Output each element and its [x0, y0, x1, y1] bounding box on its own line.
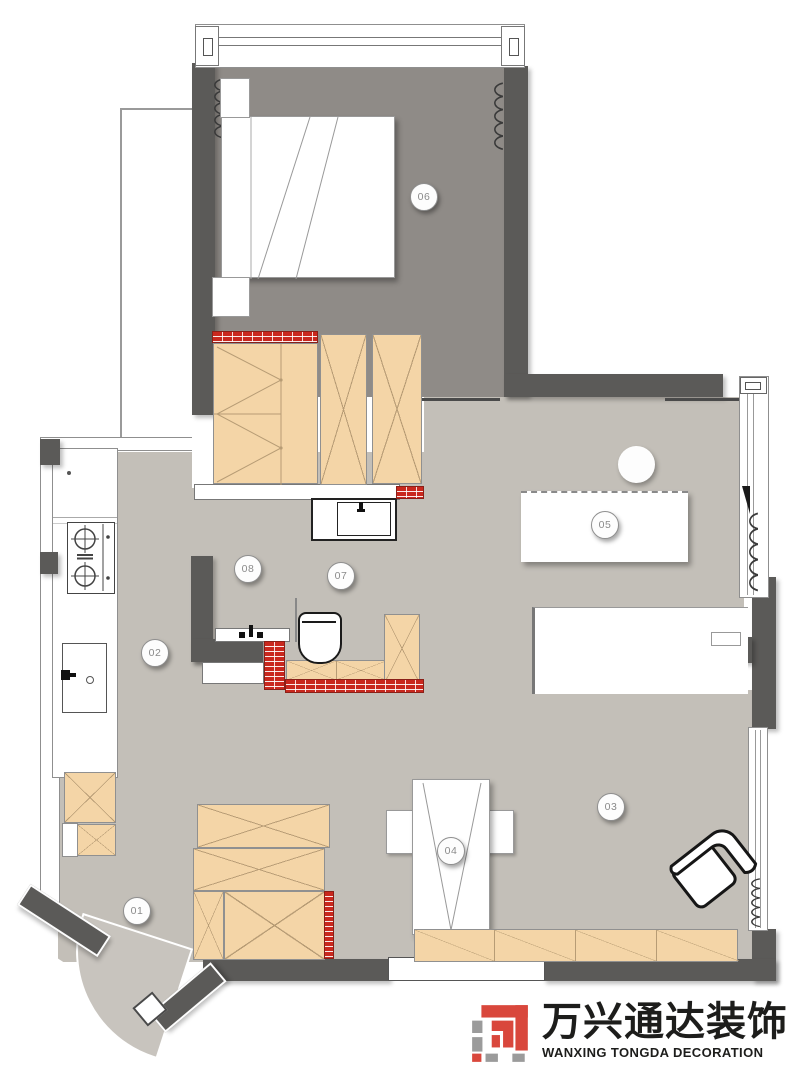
gas-stove	[67, 522, 115, 594]
wall-bottom-left	[203, 959, 389, 981]
nightstand-bottom	[212, 277, 250, 317]
kitchen-cabinet-1	[64, 772, 116, 823]
tv-cabinet-middle	[193, 848, 325, 891]
tv-cabinet-upper	[197, 804, 330, 848]
room-label-04-text: 04	[445, 845, 458, 857]
cabinet-room5	[532, 607, 748, 694]
bath-bench-horizontal	[286, 660, 385, 681]
brand-logo: 万兴通达装饰 WANXING TONGDA DECORATION	[468, 1000, 788, 1066]
kitchen-sink	[62, 643, 107, 713]
bed	[221, 116, 395, 278]
neighbor-outline-vertical	[120, 108, 122, 446]
brand-icon	[468, 1000, 534, 1066]
room-label-03-text: 03	[605, 801, 618, 813]
curtain-coil-bedroom-right	[490, 82, 505, 159]
wardrobe-right	[372, 334, 422, 484]
tv-cabinet-lower-right	[224, 891, 325, 960]
wall-room5-top	[504, 374, 723, 397]
room-label-04: 04	[437, 837, 465, 865]
brick-cabinet-right	[324, 891, 334, 959]
room-label-08: 08	[234, 555, 262, 583]
brand-name-english: WANXING TONGDA DECORATION	[542, 1045, 788, 1060]
kitchen-cabinet-2	[77, 824, 116, 856]
wall-left-block-2	[40, 552, 58, 574]
bath-counter	[215, 628, 290, 642]
window-right-upper-bracket	[740, 377, 767, 394]
window-open-marker	[742, 486, 750, 514]
room-label-06-text: 06	[418, 191, 431, 203]
wardrobe-left	[213, 343, 318, 484]
room-label-02: 02	[141, 639, 169, 667]
room-label-01-text: 01	[131, 905, 144, 917]
bath-bench-vertical	[384, 614, 420, 683]
bench-row-bottom	[414, 929, 738, 962]
brick-wardrobe-bottom-right	[396, 486, 424, 499]
room-label-06: 06	[410, 183, 438, 211]
exterior-mask-bottom	[0, 984, 458, 1080]
room-label-05-text: 05	[599, 519, 612, 531]
window-top-bracket-right	[501, 26, 525, 66]
neighbor-outline-horizontal	[120, 108, 194, 110]
brick-bath-vertical	[264, 641, 285, 690]
room-label-07-text: 07	[335, 570, 348, 582]
brick-wardrobe-top	[212, 331, 318, 343]
brick-bath-horizontal	[285, 679, 424, 693]
curtain-coil-window-right-upper	[745, 512, 760, 601]
counter-strip-small	[62, 823, 78, 857]
vanity-sink	[311, 498, 397, 541]
room-label-08-text: 08	[242, 563, 255, 575]
toilet	[298, 612, 342, 664]
room-label-03: 03	[597, 793, 625, 821]
room-label-02-text: 02	[149, 647, 162, 659]
tv-cabinet-lower-left	[193, 891, 224, 960]
stool-round	[618, 446, 655, 483]
window-top-bracket-left	[195, 26, 219, 66]
floor-plan-canvas: 01 02 03 04 05 06 07 08 万兴通达装饰 WANXING T…	[0, 0, 809, 1080]
curtain-coil-window-right-lower	[747, 878, 762, 935]
wall-bottom-right	[543, 959, 776, 981]
bath-partition-line	[295, 598, 297, 642]
room-label-07: 07	[327, 562, 355, 590]
wall-bedroom-right	[504, 66, 528, 396]
room-label-01: 01	[123, 897, 151, 925]
door-track-left	[420, 398, 500, 401]
wardrobe-middle	[320, 334, 367, 485]
nightstand-top	[220, 78, 250, 118]
wall-bath-horizontal	[191, 639, 263, 662]
room-label-05: 05	[591, 511, 619, 539]
window-top	[195, 24, 525, 68]
wall-left-block-1	[40, 439, 60, 465]
brand-name-chinese: 万兴通达装饰	[542, 1000, 788, 1044]
bath-white-box	[202, 662, 264, 684]
kitchen-counter	[52, 448, 118, 778]
bedroom-wall-gap	[192, 412, 215, 488]
